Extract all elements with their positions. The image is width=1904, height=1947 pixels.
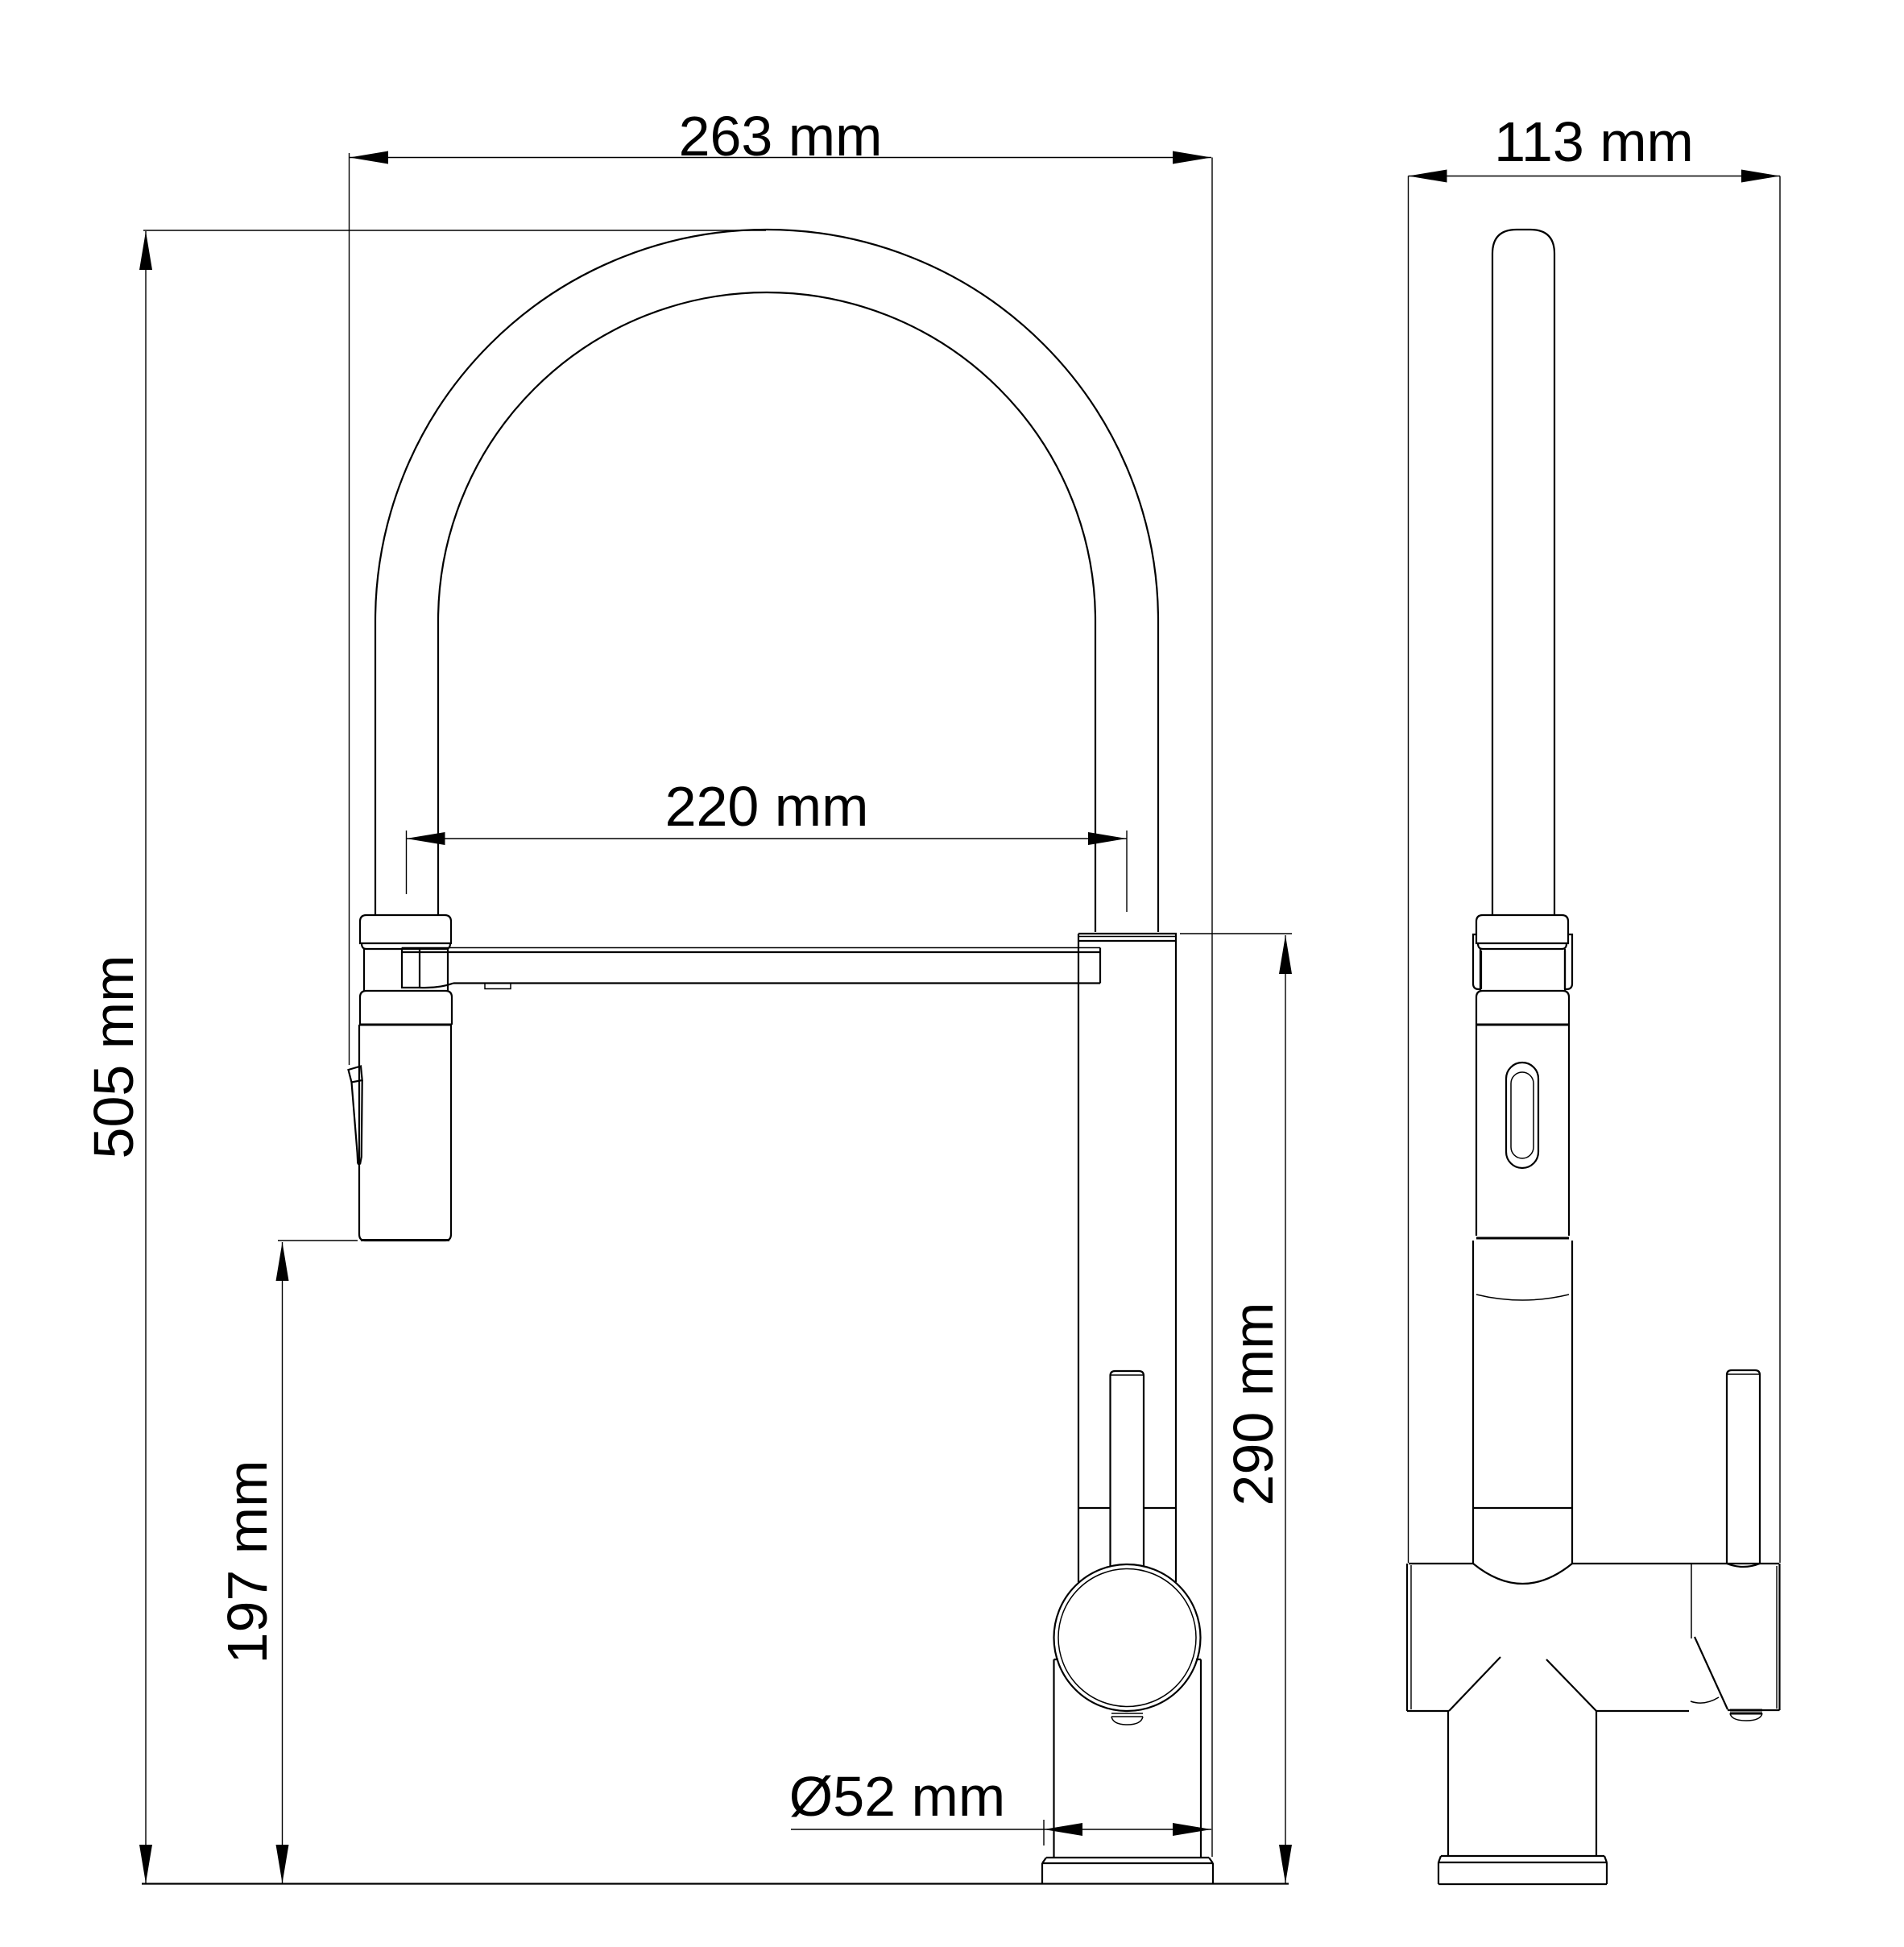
svg-text:290 mm: 290 mm [1222, 1303, 1285, 1506]
svg-text:505 mm: 505 mm [82, 955, 145, 1159]
svg-text:220 mm: 220 mm [665, 775, 869, 838]
svg-text:Ø52 mm: Ø52 mm [789, 1765, 1005, 1828]
svg-text:263 mm: 263 mm [679, 105, 883, 168]
svg-text:197 mm: 197 mm [216, 1460, 279, 1664]
svg-text:113 mm: 113 mm [1494, 110, 1694, 173]
